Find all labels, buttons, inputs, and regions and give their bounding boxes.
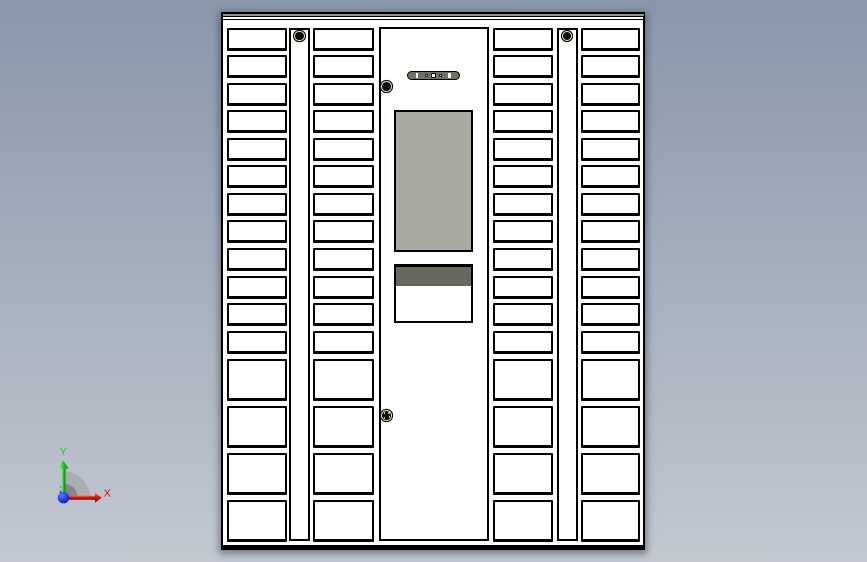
svg-text:X: X	[104, 488, 111, 500]
svg-text:Y: Y	[60, 446, 67, 458]
